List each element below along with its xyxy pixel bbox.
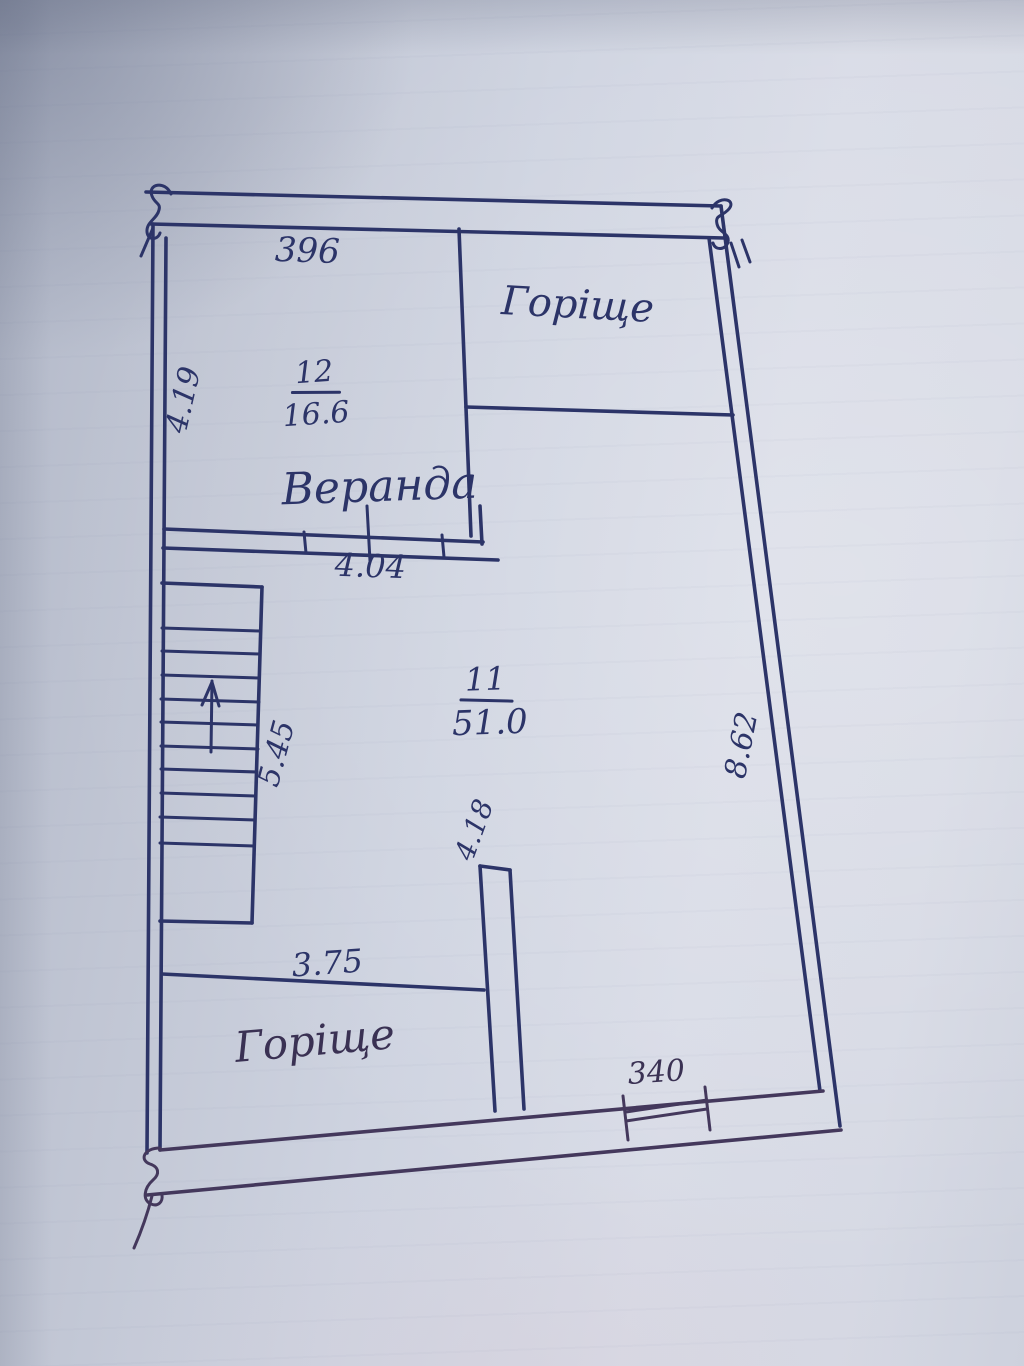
- stair-tread: [162, 675, 259, 678]
- label-room11-fraction: 11 51.0: [450, 659, 529, 745]
- label-room12-fraction: 12 16.6: [279, 353, 351, 434]
- stair-tread: [162, 651, 260, 654]
- corner-flourish-top-right-tail: [731, 240, 750, 267]
- stair-tread: [161, 769, 257, 772]
- wall-right-outer: [721, 206, 840, 1126]
- label-room11-area: 51.0: [451, 702, 528, 745]
- stair-tread: [161, 746, 258, 749]
- corner-flourish-bottom-left-tail: [134, 1196, 152, 1248]
- label-attic-bottom: Горіще: [232, 1009, 397, 1072]
- up-arrow-shaft: [211, 681, 212, 752]
- veranda-right-divider-second: [480, 506, 482, 544]
- floor-plan-photo: 396 Горіще 12 16.6 4.19 Веранда 4.04 5.4…: [0, 0, 1024, 1366]
- label-veranda: Веранда: [280, 458, 479, 516]
- up-arrow-icon: [202, 681, 219, 752]
- wall-right-inner: [709, 238, 820, 1091]
- wall-left-inner: [160, 238, 166, 1150]
- staircase: [160, 583, 262, 923]
- stair-tread: [160, 817, 255, 820]
- stair-tread: [160, 843, 254, 846]
- label-dim-window-width: 340: [627, 1053, 687, 1092]
- label-dim-right-height: 8.62: [718, 709, 765, 781]
- label-dim-top-width: 396: [274, 230, 340, 272]
- wall-bottom-outer: [147, 1130, 841, 1195]
- veranda-bottom-tick-3: [442, 535, 444, 557]
- partition-top-cap: [480, 866, 510, 870]
- partition-right-edge: [510, 870, 524, 1109]
- floor-plan-svg: 396 Горіще 12 16.6 4.19 Веранда 4.04 5.4…: [0, 0, 1024, 1366]
- label-dim-partition-height: 4.18: [448, 795, 501, 866]
- veranda-bottom-upper-line: [164, 529, 483, 542]
- veranda-bottom-lower-line: [163, 548, 498, 560]
- stair-tread: [162, 628, 260, 631]
- lower-partition-wall: [162, 866, 524, 1111]
- stairs-bottom-edge: [160, 921, 252, 923]
- window-symbol: [623, 1087, 710, 1140]
- stair-tread: [161, 699, 259, 702]
- window-left-tick: [623, 1096, 628, 1140]
- stairs-top-edge: [162, 583, 262, 587]
- attic-top-partition-line: [466, 407, 733, 415]
- veranda-bottom-tick-1: [304, 532, 306, 553]
- stair-tread: [161, 722, 258, 725]
- wall-top-outer: [146, 192, 721, 206]
- label-dim-lower-width: 3.75: [290, 942, 364, 985]
- label-attic-top: Горіще: [499, 278, 655, 332]
- stair-tread: [161, 793, 256, 796]
- wall-left-outer: [147, 224, 153, 1153]
- label-room12-area: 16.6: [281, 395, 350, 435]
- label-room11-number: 11: [464, 659, 506, 698]
- label-room12-number: 12: [294, 354, 335, 392]
- wall-top-inner: [151, 224, 724, 238]
- label-dim-veranda-width: 4.04: [333, 546, 407, 586]
